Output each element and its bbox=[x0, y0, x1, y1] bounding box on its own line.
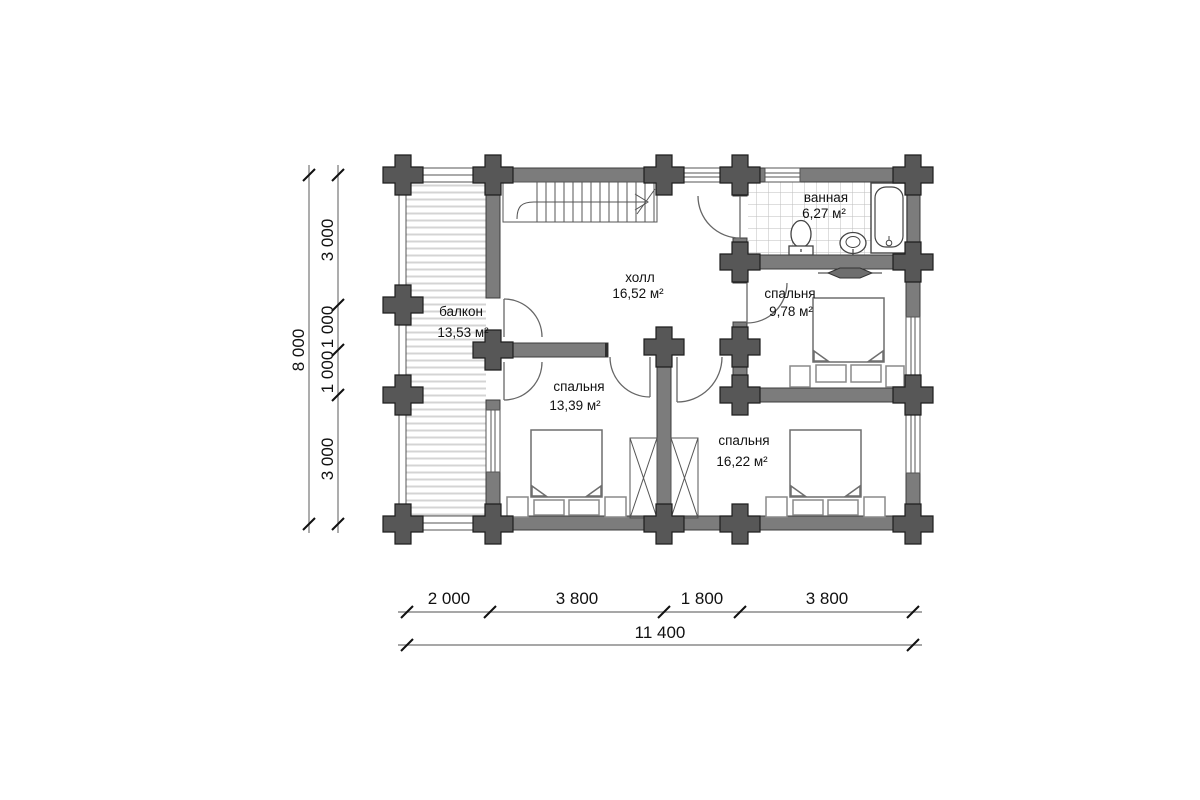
window bbox=[486, 410, 500, 472]
floor-plan-page: балкон 13,53 м² холл 16,52 м² ванная 6,2… bbox=[0, 0, 1200, 800]
dimension-segment: 3 000 bbox=[318, 438, 337, 481]
window bbox=[765, 168, 800, 182]
log-cross-icon bbox=[644, 504, 684, 544]
room-area-balcony: 13,53 м² bbox=[437, 325, 489, 340]
dimension-segment: 3 800 bbox=[806, 589, 849, 608]
door-bathroom bbox=[698, 196, 740, 238]
wall-segment bbox=[486, 516, 913, 530]
bathtub-icon bbox=[871, 183, 907, 253]
room-area-bedroom-left: 13,39 м² bbox=[549, 398, 601, 413]
dimension-total-vertical: 8 000 bbox=[289, 329, 308, 372]
room-area-bedroom-right: 9,78 м² bbox=[769, 304, 813, 319]
log-cross-icon bbox=[644, 155, 684, 195]
room-label-hall: холл bbox=[625, 270, 655, 285]
wall-segment bbox=[657, 347, 671, 516]
room-area-hall: 16,52 м² bbox=[612, 286, 664, 301]
door-balcony-hall bbox=[504, 299, 542, 337]
dimension-segment: 1 800 bbox=[681, 589, 724, 608]
log-cross-icon bbox=[720, 504, 760, 544]
dimension-segment: 3 800 bbox=[556, 589, 599, 608]
door-bedroom-left bbox=[610, 357, 650, 397]
wall-segment bbox=[500, 343, 608, 357]
dimension-segment: 1 000 bbox=[318, 306, 337, 349]
window bbox=[906, 317, 920, 382]
dimension-left: 8 000 3 000 1 000 1 000 3 000 bbox=[289, 165, 344, 533]
room-label-bedroom-left: спальня bbox=[553, 379, 604, 394]
stairs bbox=[503, 182, 657, 222]
door-balcony-bedroom bbox=[504, 362, 542, 400]
bed-icon bbox=[507, 430, 626, 517]
dimension-bottom: 2 000 3 800 1 800 3 800 11 400 bbox=[398, 589, 922, 651]
log-cross-icon bbox=[720, 375, 760, 415]
floor-plan-drawing: балкон 13,53 м² холл 16,52 м² ванная 6,2… bbox=[0, 0, 1200, 800]
dimension-segment: 2 000 bbox=[428, 589, 471, 608]
room-label-bedroom-bottom: спальня bbox=[718, 433, 769, 448]
room-area-bedroom-bottom: 16,22 м² bbox=[716, 454, 768, 469]
dimension-segment: 3 000 bbox=[318, 219, 337, 262]
room-label-bathroom: ванная bbox=[804, 190, 848, 205]
toilet-icon bbox=[789, 221, 813, 256]
dimension-segment: 1 000 bbox=[318, 351, 337, 394]
door-jamb bbox=[605, 343, 608, 357]
dimension-total-horizontal: 11 400 bbox=[635, 623, 686, 642]
stairs-direction-arrow bbox=[517, 189, 655, 219]
log-cross-icon bbox=[720, 327, 760, 367]
room-area-bathroom: 6,27 м² bbox=[802, 206, 846, 221]
door-bedroom-bottom bbox=[677, 357, 722, 402]
bed-icon bbox=[766, 430, 885, 517]
room-label-bedroom-right: спальня bbox=[764, 286, 815, 301]
wall-segment bbox=[486, 400, 500, 410]
room-label-balcony: балкон bbox=[439, 304, 483, 319]
log-cross-icon bbox=[893, 504, 933, 544]
